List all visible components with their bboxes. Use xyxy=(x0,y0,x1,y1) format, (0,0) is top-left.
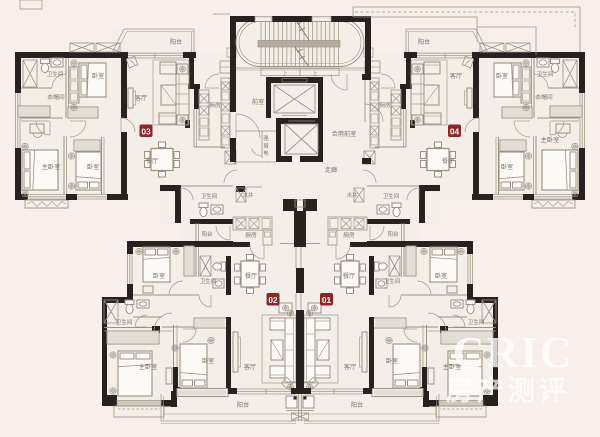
svg-text:合用前室: 合用前室 xyxy=(332,130,357,138)
svg-text:阳台: 阳台 xyxy=(170,38,182,46)
svg-text:客厅: 客厅 xyxy=(135,94,147,102)
svg-text:客厅: 客厅 xyxy=(450,72,462,80)
svg-text:主卧室: 主卧室 xyxy=(541,136,560,144)
svg-text:03: 03 xyxy=(141,126,151,136)
svg-text:衣帽间: 衣帽间 xyxy=(47,93,65,101)
svg-text:卧室: 卧室 xyxy=(501,163,513,171)
svg-text:主卧室: 主卧室 xyxy=(42,163,61,171)
svg-text:客厅: 客厅 xyxy=(344,363,356,371)
svg-text:阳台: 阳台 xyxy=(237,401,249,409)
svg-text:厨房: 厨房 xyxy=(245,231,257,239)
svg-text:卫生间: 卫生间 xyxy=(384,277,400,285)
svg-text:前室: 前室 xyxy=(252,98,264,106)
svg-text:卫生间: 卫生间 xyxy=(537,70,554,78)
svg-text:卧室: 卧室 xyxy=(435,272,447,280)
svg-text:水井: 水井 xyxy=(347,191,358,199)
svg-text:卧室: 卧室 xyxy=(92,72,104,80)
svg-text:卫生间: 卫生间 xyxy=(383,192,399,200)
svg-text:02: 02 xyxy=(268,295,278,305)
svg-text:卧室: 卧室 xyxy=(202,357,214,365)
svg-text:厨房: 厨房 xyxy=(343,231,355,239)
svg-text:电: 电 xyxy=(263,149,268,157)
svg-text:卫生间: 卫生间 xyxy=(47,70,64,78)
svg-text:阳台: 阳台 xyxy=(351,401,363,409)
svg-text:阳台: 阳台 xyxy=(418,38,430,46)
svg-text:卧室: 卧室 xyxy=(496,72,508,80)
svg-text:卧室: 卧室 xyxy=(386,357,398,365)
svg-text:餐厅: 餐厅 xyxy=(146,157,158,165)
svg-text:卫生间: 卫生间 xyxy=(200,277,216,285)
svg-text:走廊: 走廊 xyxy=(325,166,337,174)
svg-text:卫生间: 卫生间 xyxy=(468,318,485,326)
svg-text:弱: 弱 xyxy=(263,143,268,150)
svg-text:房产测评: 房产测评 xyxy=(446,376,570,406)
svg-text:客厅: 客厅 xyxy=(244,363,256,371)
svg-text:04: 04 xyxy=(450,126,460,136)
svg-text:上: 上 xyxy=(313,70,318,76)
svg-text:主卧室: 主卧室 xyxy=(139,363,158,371)
svg-text:阳台: 阳台 xyxy=(202,230,213,238)
svg-text:餐厅: 餐厅 xyxy=(343,272,355,280)
svg-text:卫生间: 卫生间 xyxy=(201,192,217,200)
svg-text:厨房: 厨房 xyxy=(209,101,221,109)
svg-text:阳台: 阳台 xyxy=(388,230,399,238)
svg-text:衣帽间: 衣帽间 xyxy=(535,93,553,101)
svg-text:强: 强 xyxy=(263,135,268,142)
svg-text:卧室: 卧室 xyxy=(153,272,165,280)
svg-text:上: 上 xyxy=(283,70,288,76)
svg-text:餐厅: 餐厅 xyxy=(245,272,257,280)
svg-text:厨房: 厨房 xyxy=(379,101,391,109)
svg-text:卫生间: 卫生间 xyxy=(116,318,133,326)
svg-text:餐厅: 餐厅 xyxy=(442,157,454,165)
svg-text:01: 01 xyxy=(322,295,332,305)
svg-text:卧室: 卧室 xyxy=(87,163,99,171)
svg-text:CRIC: CRIC xyxy=(453,328,573,377)
svg-text:水井: 水井 xyxy=(243,191,254,199)
